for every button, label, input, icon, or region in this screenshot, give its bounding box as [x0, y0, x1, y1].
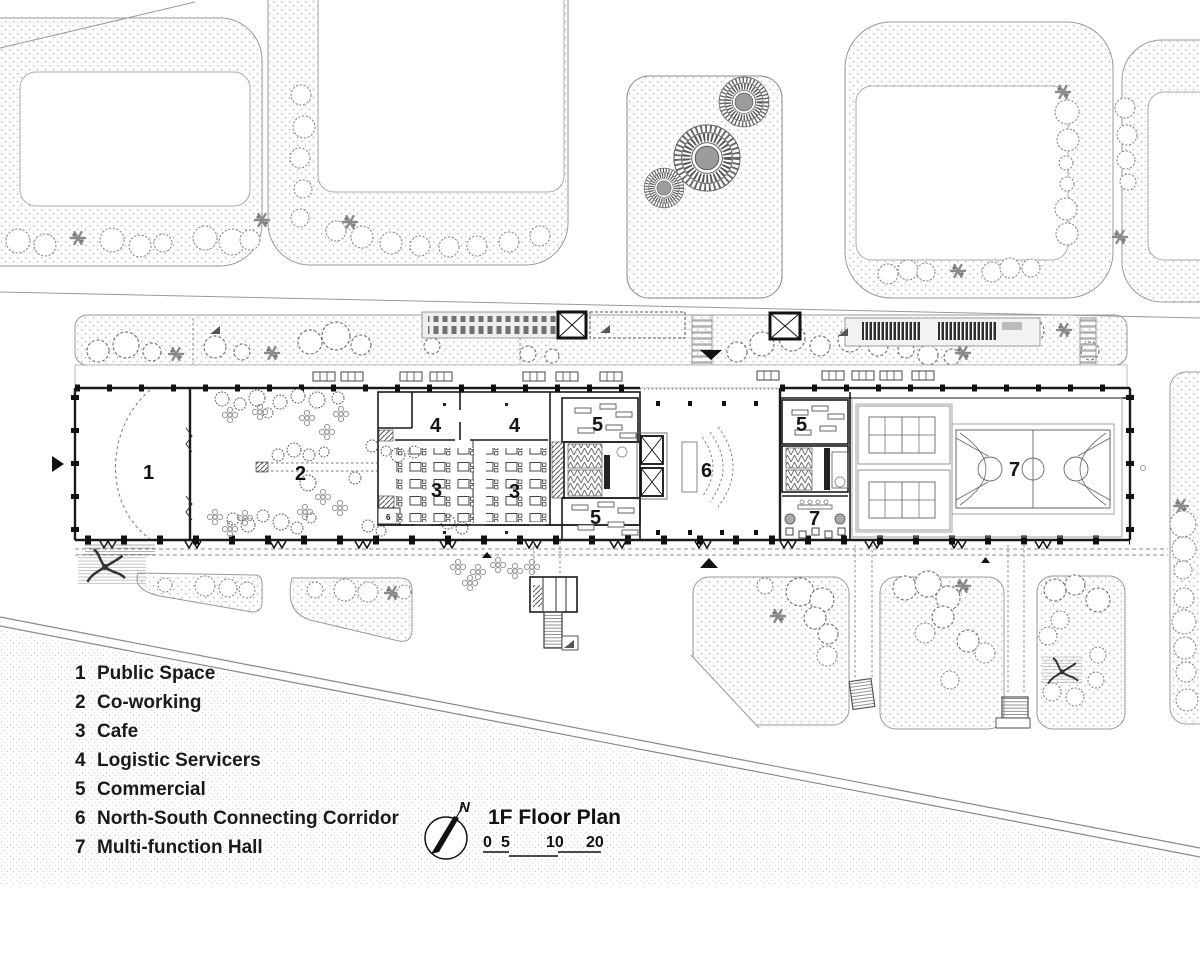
floor-plan-page: 1 2 3 3 4 4 5 5 5 6 6 7 7 N 1Public Spac… [0, 0, 1200, 960]
scale-tick-10: 10 [546, 834, 564, 852]
legend-num: 5 [75, 775, 97, 804]
legend-label: Commercial [97, 779, 206, 800]
legend-item-1: 1Public Space [75, 659, 399, 688]
legend-num: 6 [75, 804, 97, 833]
room-label-5b: 5 [590, 507, 601, 529]
legend-num: 1 [75, 659, 97, 688]
legend-item-5: 5Commercial [75, 775, 399, 804]
room-label-4: 4 [430, 415, 442, 437]
crosswalk [692, 315, 712, 373]
legend-label: Co-working [97, 692, 202, 713]
room-label-1: 1 [143, 462, 154, 484]
room-label-3: 3 [431, 480, 442, 502]
multifunction-hall [852, 398, 1122, 537]
legend-item-3: 3Cafe [75, 717, 399, 746]
site-north-band [75, 312, 1127, 373]
legend-label: Logistic Servicers [97, 750, 261, 771]
north-city-blocks [0, 0, 1200, 318]
drawing-title: 1F Floor Plan [488, 806, 621, 830]
west-entrance-arrow [52, 456, 64, 472]
legend-label: Cafe [97, 721, 138, 742]
legend-num: 4 [75, 746, 97, 775]
scale-tick-5: 5 [501, 834, 510, 852]
legend-num: 3 [75, 717, 97, 746]
arcade-strip [75, 365, 1127, 388]
radial-tree [719, 77, 769, 127]
legend-num: 7 [75, 833, 97, 862]
room-label-7b: 7 [1009, 459, 1020, 481]
legend-label: Public Space [97, 663, 215, 684]
south-entrance-arrow [700, 558, 718, 568]
legend-label: Multi-function Hall [97, 837, 263, 858]
room-label-5c: 5 [796, 414, 807, 436]
stair-core-west [558, 312, 586, 338]
room-label-2: 2 [295, 463, 306, 485]
room-label-4b: 4 [509, 415, 521, 437]
legend: 1Public Space 2Co-working 3Cafe 4Logisti… [75, 659, 399, 862]
legend-item-7: 7Multi-function Hall [75, 833, 399, 862]
room-label-3b: 3 [509, 481, 520, 503]
metro-pavilion [530, 577, 578, 650]
north-label: N [459, 799, 471, 816]
legend-item-2: 2Co-working [75, 688, 399, 717]
subway-stair [849, 679, 875, 710]
scale-tick-20: 20 [586, 834, 604, 852]
room-label-6: 6 [701, 460, 712, 482]
room-label-7: 7 [809, 508, 820, 530]
legend-item-6: 6North-South Connecting Corridor [75, 804, 399, 833]
stair-core-east [770, 313, 800, 339]
corridor-core [637, 401, 758, 535]
hall-entry-strip [780, 388, 1130, 540]
crosswalk [1080, 318, 1096, 366]
room-label-5: 5 [592, 414, 603, 436]
legend-num: 2 [75, 688, 97, 717]
room-label-6-small: 6 [386, 513, 391, 522]
legend-item-4: 4Logistic Servicers [75, 746, 399, 775]
legend-label: North-South Connecting Corridor [97, 808, 399, 829]
scale-tick-0: 0 [483, 834, 492, 852]
main-building [75, 388, 1130, 548]
